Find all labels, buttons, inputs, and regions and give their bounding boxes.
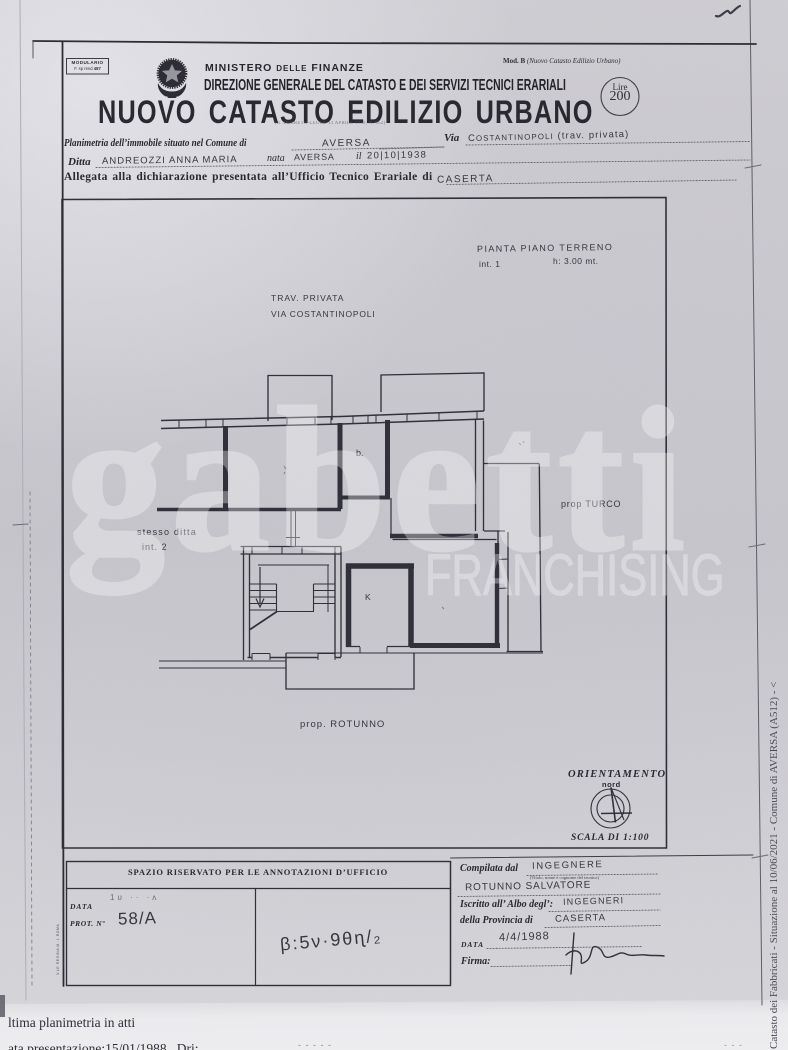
svg-text:FRANCHISING: FRANCHISING	[425, 543, 725, 607]
